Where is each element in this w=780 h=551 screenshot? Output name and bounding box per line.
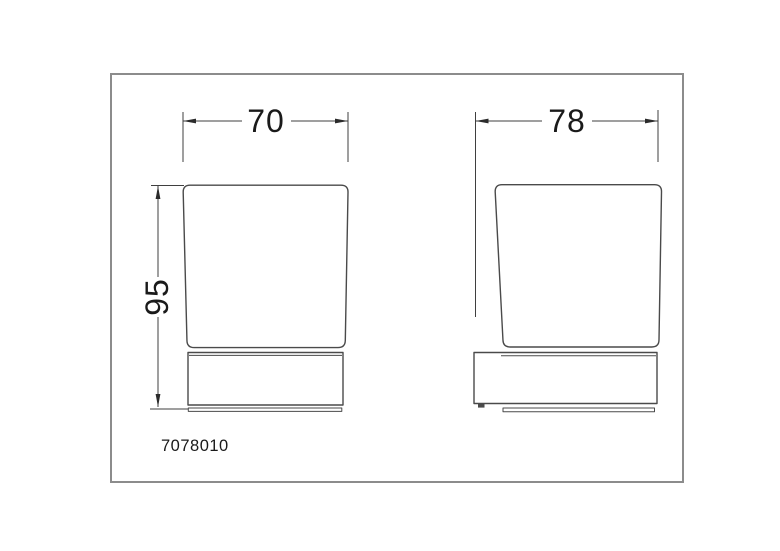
arrow-right-icon xyxy=(645,119,658,124)
arrow-down-icon xyxy=(156,394,161,407)
holder-width-dimension-value: 78 xyxy=(527,103,607,139)
height-dimension-value: 95 xyxy=(139,257,175,337)
left-tumbler-glass-outline xyxy=(183,185,348,347)
left-holder-base-outline xyxy=(188,353,343,406)
technical-drawing-page: 70 78 95 7078010 xyxy=(0,0,780,551)
dimension-arrowheads xyxy=(156,119,658,407)
dimension-lines xyxy=(150,110,658,409)
left-holder-plinth-outline xyxy=(188,408,341,411)
arrow-up-icon xyxy=(156,186,161,199)
part-number: 7078010 xyxy=(161,436,229,456)
drawing-linework xyxy=(0,0,780,551)
glass-width-dimension-value: 70 xyxy=(226,103,306,139)
right-holder-base-outline xyxy=(474,353,657,404)
right-tumbler-glass-outline xyxy=(495,185,661,347)
object-outlines xyxy=(183,185,661,412)
right-holder-mount-pad xyxy=(478,404,485,408)
holder-width-extension-lines xyxy=(476,110,659,317)
arrow-right-icon xyxy=(335,119,348,124)
arrow-left-icon xyxy=(183,119,196,124)
arrow-left-icon xyxy=(476,119,489,124)
right-holder-plinth-outline xyxy=(503,408,655,412)
